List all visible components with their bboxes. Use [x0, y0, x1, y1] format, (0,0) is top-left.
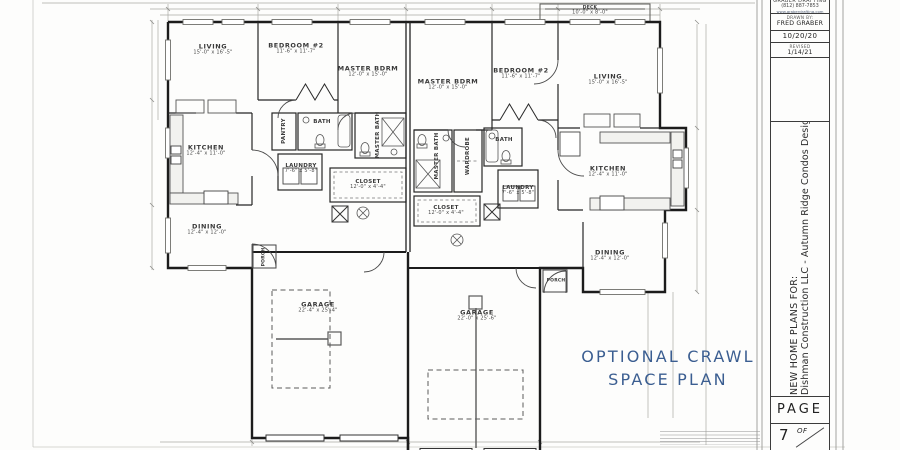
room-label-master-right: MASTER BDRM 12'-0" x 15'-0" [418, 78, 479, 91]
project-title-rotated: NEW HOME PLANS FOR: Dishman Construction… [789, 123, 811, 395]
page-number-box: 7 OF [771, 424, 829, 449]
attic-access-left [332, 206, 348, 222]
room-label-bedroom2-left: BEDROOM #2 11'-6" x 11'-7" [268, 42, 324, 55]
room-label-porch-right: PORCH [547, 278, 566, 283]
room-label-dining-left: DINING 12'-4" x 12'-0" [187, 223, 226, 236]
room-label-porch-left: PORCH [261, 248, 266, 267]
title-block-spacer [771, 58, 829, 122]
room-label-living-left: LIVING 15'-0" x 16'-5" [193, 43, 232, 56]
room-label-garage-right: GARAGE 22'-0" x 25'-6" [457, 309, 496, 322]
floor-plan-drawing [0, 0, 900, 450]
room-label-bath-right: BATH [495, 137, 513, 143]
page-label: PAGE [771, 397, 829, 424]
annotation-line-1: OPTIONAL CRAWL [581, 345, 755, 368]
room-label-wardrobe-right: WARDROBE [465, 137, 471, 175]
room-label-master-bath-left: MASTER BATH [375, 111, 381, 158]
revised-date: 1/14/21 [771, 49, 829, 56]
project-line-2: Dishman Construction LLC - Autumn Ridge … [800, 123, 811, 395]
page-of-label: OF [797, 427, 808, 435]
room-label-master-left: MASTER BDRM 12'-0" x 15'-0" [338, 65, 399, 78]
room-label-deck: DECK 10'-0" x 8'-0" [572, 6, 608, 17]
room-label-laundry-left: LAUNDRY 7'-6" x 5'-8" [285, 163, 317, 175]
room-label-living-right: LIVING 15'-0" x 16'-5" [588, 73, 627, 86]
room-label-kitchen-right: KITCHEN 12'-4" x 11'-0" [588, 165, 627, 178]
project-line-1: NEW HOME PLANS FOR: [789, 123, 800, 395]
blueprint-sheet: LIVING 15'-0" x 16'-5" BEDROOM #2 11'-6"… [0, 0, 900, 450]
room-label-pantry-left: PANTRY [281, 118, 287, 144]
title-block-company: GRABER DRAFTING (812) 887-7853 www.grabe… [771, 0, 829, 14]
room-label-master-bath-right: MASTER BATH [434, 132, 440, 179]
room-label-closet-left: CLOSET 12'-0" x 4'-4" [350, 179, 386, 191]
room-label-kitchen-left: KITCHEN 12'-4" x 11'-0" [186, 144, 225, 157]
drawn-by-name: FRED GRABER [771, 20, 829, 27]
bifold-doors-right [500, 104, 538, 120]
title-block-revised: REVISED 1/14/21 [771, 43, 829, 58]
party-wall [406, 22, 410, 252]
title-block-date: 10/20/20 [771, 31, 829, 43]
title-block: GRABER DRAFTING (812) 887-7853 www.grabe… [770, 0, 830, 450]
optional-crawl-space-note: OPTIONAL CRAWL SPACE PLAN [581, 345, 755, 391]
room-label-bedroom2-right: BEDROOM #2 11'-6" x 11'-7" [493, 67, 549, 80]
page-number: 7 [779, 426, 789, 444]
title-block-drawn-by: DRAWN BY: FRED GRABER [771, 14, 829, 31]
room-label-closet-right: CLOSET 12'-0" x 4'-4" [428, 205, 464, 217]
room-label-garage-left: GARAGE 22'-4" x 25'-4" [298, 301, 337, 314]
room-label-laundry-right: LAUNDRY 7'-6" x 5'-8" [502, 185, 534, 197]
bifold-doors-left [296, 84, 334, 100]
room-label-dining-right: DINING 12'-4" x 12'-0" [590, 249, 629, 262]
annotation-line-2: SPACE PLAN [581, 368, 755, 391]
room-label-bath-left: BATH [313, 119, 331, 125]
garage-house-walls [252, 252, 540, 268]
interior-walls-right [414, 22, 660, 268]
attic-access-right [484, 204, 500, 220]
fine-print-disclaimer [660, 431, 760, 445]
title-block-project: NEW HOME PLANS FOR: Dishman Construction… [771, 122, 829, 397]
